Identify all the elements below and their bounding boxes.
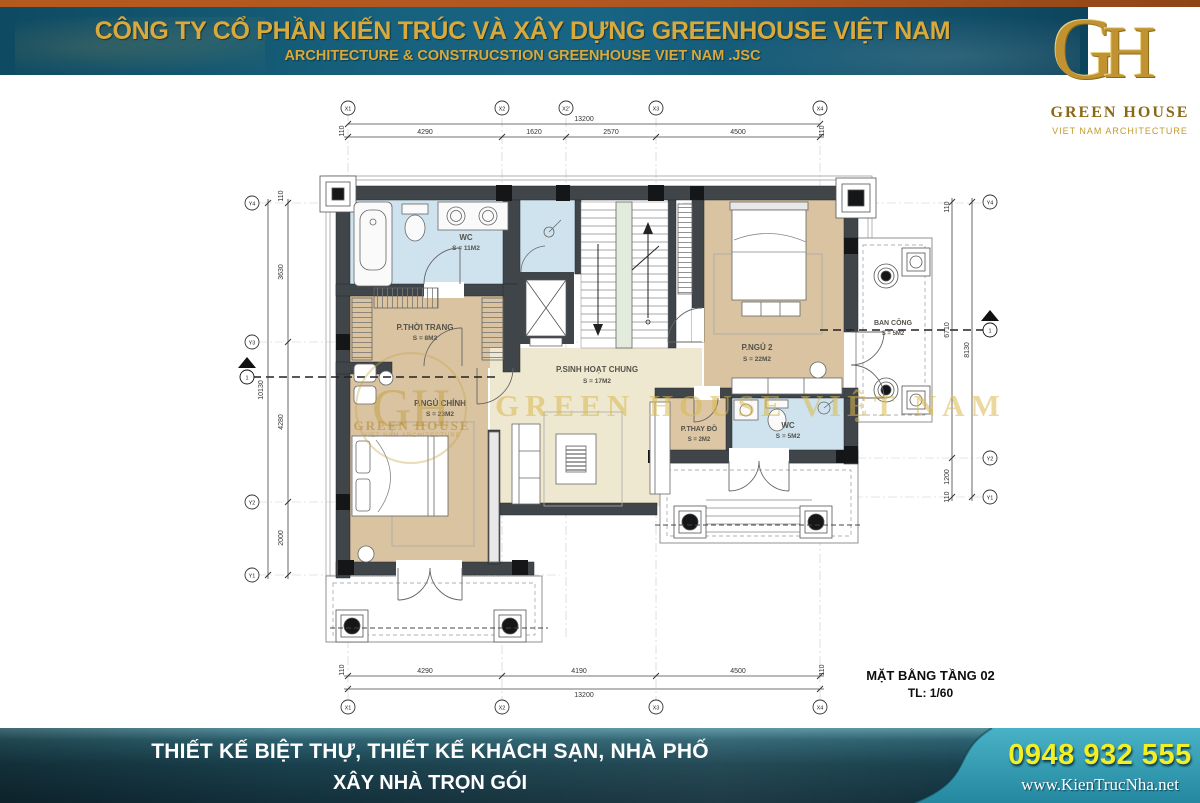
dimension-bottom: [344, 673, 824, 692]
watermark-logo-circle: GH: [355, 352, 467, 464]
section-marker-right-arrow: [981, 310, 999, 321]
footer-services-line1: THIẾT KẾ BIỆT THỰ, THIẾT KẾ KHÁCH SẠN, N…: [70, 740, 790, 764]
dim-right-seg2: 6710: [944, 322, 951, 338]
watermark-logo-name: GREEN HOUSE: [347, 418, 477, 434]
dim-bottom-edge-right: 110: [819, 664, 826, 675]
label-bedroom2-area: S = 22M2: [743, 356, 771, 363]
bubble-left-y3: Y3: [249, 341, 256, 347]
bubble-bottom-x2: X2: [499, 706, 506, 712]
toilet-tank: [402, 204, 428, 214]
bubble-bottom-x4: X4: [817, 706, 824, 712]
dim-top-total: 13200: [574, 116, 594, 123]
label-wardrobe-name: P.THỜI TRANG: [397, 323, 454, 332]
elevator-door: [530, 338, 562, 346]
dim-top-edge-left: 110: [339, 125, 346, 136]
dimension-top: [344, 121, 824, 140]
page: CÔNG TY CỔ PHẦN KIẾN TRÚC VÀ XÂY DỰNG GR…: [0, 0, 1200, 803]
bed2: [732, 210, 806, 300]
wall-wardrobe-right: [503, 284, 520, 372]
bubble-top-x4: X4: [817, 107, 824, 113]
floor-shower: [520, 198, 575, 274]
master-tv-unit: [489, 432, 499, 562]
label-common-name: P.SINH HOẠT CHUNG: [556, 365, 638, 374]
bed2-bench: [742, 302, 800, 316]
header-top-strip: [0, 0, 1200, 7]
bubble-top-x2: X2: [499, 107, 506, 113]
label-wc1-name: WC: [459, 233, 473, 242]
bed2-headboard: [730, 202, 808, 210]
dim-right-total: 8130: [964, 342, 971, 358]
watermark-logo-tagline: VIET NAM ARCHITECTURE: [347, 433, 477, 439]
company-name-en: ARCHITECTURE & CONSTRUCSTION GREENHOUSE …: [0, 48, 1045, 64]
logo-tagline: VIET NAM ARCHITECTURE: [1040, 126, 1200, 136]
wall-left: [336, 186, 350, 578]
dim-left-seg2: 4280: [278, 414, 285, 430]
pillow-2: [356, 479, 370, 511]
plan-scale: TL: 1/60: [858, 686, 1003, 700]
dim-left-seg3: 2000: [278, 530, 285, 546]
stool-master: [358, 546, 374, 562]
bubble-left-y2: Y2: [249, 501, 256, 507]
dim-right-seg4: 110: [944, 491, 951, 502]
dim-top-edge-right: 110: [819, 125, 826, 136]
dim-bottom-edge-left: 110: [339, 664, 346, 675]
label-wc1-area: S = 11M2: [452, 245, 480, 252]
dim-left-total: 10130: [258, 380, 265, 400]
bedroom2-closet: [678, 204, 692, 294]
dim-top-seg2: 1620: [526, 129, 542, 136]
bubble-right-y2: Y2: [987, 457, 994, 463]
label-common-area: S = 17M2: [583, 378, 611, 385]
dim-right-seg3: 1200: [944, 469, 951, 485]
bubble-right-y4: Y4: [987, 201, 994, 207]
label-bedroom2-name: P.NGỦ 2: [742, 343, 774, 352]
dim-bottom-seg2: 4190: [571, 668, 587, 675]
dim-bottom-seg1: 4290: [417, 668, 433, 675]
bubble-top-x2b: X2': [562, 107, 570, 113]
toilet-bowl: [405, 215, 425, 241]
bubble-bottom-x1: X1: [345, 706, 352, 712]
bubble-left-y4: Y4: [249, 202, 256, 208]
label-wardrobe-area: S = 8M2: [413, 335, 438, 342]
bubble-bottom-x3: X3: [653, 706, 660, 712]
label-wc2-area: S = 5M2: [776, 433, 801, 440]
dim-left-seg1: 3630: [278, 264, 285, 280]
bubble-left-y1: Y1: [249, 574, 256, 580]
footer-services-line2: XÂY NHÀ TRỌN GÓI: [70, 772, 790, 795]
dimension-right: [949, 198, 975, 501]
stool-bedroom2: [810, 362, 826, 378]
stair-runner: [616, 202, 632, 348]
section-marker-left-arrow: [238, 357, 256, 368]
wall-shower-right: [575, 200, 581, 274]
staircase: [581, 202, 668, 348]
pillow-1: [356, 441, 370, 473]
label-balcony-name: BAN CÔNG: [874, 318, 913, 327]
sofa: [512, 424, 540, 504]
dim-top-seg4: 4500: [730, 129, 746, 136]
dim-top-seg1: 4290: [417, 129, 433, 136]
dim-bottom-seg3: 4500: [730, 668, 746, 675]
plan-title: MẶT BẰNG TẦNG 02: [858, 668, 1003, 683]
section-marker-right-label: 1: [988, 329, 991, 335]
label-balcony-area: S = 5M2: [882, 331, 905, 337]
dim-left-edge-top: 110: [278, 190, 285, 201]
footer-website-link[interactable]: www.KienTrucNha.net: [1005, 775, 1195, 795]
wall-top: [336, 186, 862, 200]
bubble-right-y1: Y1: [987, 496, 994, 502]
wall-living-bottom: [495, 503, 657, 515]
label-dressing-area: S = 2M2: [688, 437, 711, 443]
section-marker-left-label: 1: [245, 376, 248, 382]
bubble-top-x3: X3: [653, 107, 660, 113]
logo-name: GREEN HOUSE: [1040, 104, 1200, 122]
bubble-top-x1: X1: [345, 107, 352, 113]
dim-top-seg3: 2570: [603, 129, 619, 136]
dim-bottom-total: 13200: [574, 692, 594, 699]
watermark-text: GREEN HOUSE VIỆT NAM: [495, 388, 1006, 424]
company-name: CÔNG TY CỔ PHẦN KIẾN TRÚC VÀ XÂY DỰNG GR…: [0, 17, 1045, 46]
footer-phone-number[interactable]: 0948 932 555: [1005, 739, 1195, 772]
elevator: [518, 272, 574, 346]
logo-monogram-h: H: [1103, 16, 1156, 90]
table-runner: [566, 446, 586, 472]
dimension-left: [265, 199, 291, 579]
dim-right-seg1: 110: [944, 201, 951, 212]
